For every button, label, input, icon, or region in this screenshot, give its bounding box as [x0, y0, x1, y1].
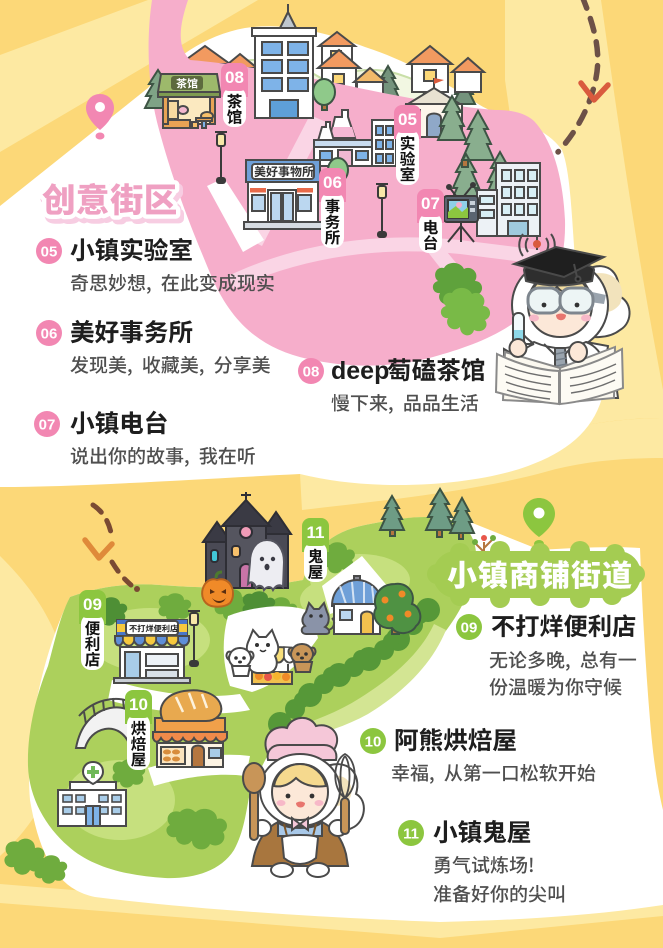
- svg-text:08: 08: [303, 364, 320, 381]
- svg-text:09: 09: [83, 595, 102, 614]
- svg-text:10: 10: [129, 695, 148, 714]
- svg-text:deep: deep: [331, 357, 389, 385]
- svg-text:05: 05: [398, 110, 417, 129]
- svg-text:07: 07: [39, 417, 56, 434]
- svg-text:11: 11: [403, 826, 419, 843]
- svg-text:08: 08: [225, 68, 244, 87]
- svg-text:05: 05: [41, 244, 58, 261]
- svg-text:06: 06: [323, 173, 342, 192]
- svg-text:07: 07: [421, 194, 440, 213]
- svg-text:09: 09: [461, 620, 478, 637]
- svg-text:11: 11: [307, 523, 325, 542]
- svg-text:06: 06: [41, 326, 58, 343]
- svg-text:10: 10: [365, 734, 382, 751]
